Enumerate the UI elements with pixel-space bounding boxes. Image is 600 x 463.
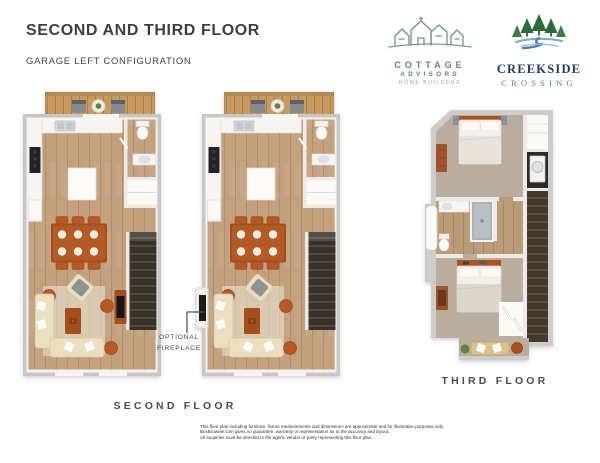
closet [499, 302, 523, 336]
creekside-name: CREEKSIDE [486, 62, 592, 77]
disclaimer: This floor plan including furniture, fix… [200, 424, 444, 440]
second-floor-plan [15, 92, 161, 382]
optional-fireplace-callout: OPTIONAL FIREPLACE [150, 333, 208, 355]
bedroom-2 [436, 258, 529, 356]
cottage-name: COTTAGE [381, 60, 479, 70]
bench [471, 342, 509, 355]
cottage-houses-icon [383, 14, 477, 54]
laundry-closet [527, 152, 548, 191]
second-floor-plan-optional-fireplace [194, 92, 340, 382]
creekside-crossing-logo: CREEKSIDE CROSSING [486, 12, 592, 88]
tv-console [115, 290, 127, 324]
bed [459, 120, 501, 164]
cottage-advisors-logo: COTTAGE ADVISORS HOME BUILDERS [381, 14, 479, 86]
plant-icon [461, 345, 470, 354]
configuration-label: GARAGE LEFT CONFIGURATION [26, 56, 191, 67]
nightstand [501, 116, 507, 125]
crossing-name: CROSSING [486, 78, 592, 88]
bathroom [426, 201, 523, 256]
callout-line2: FIREPLACE [150, 344, 208, 355]
nightstand [453, 116, 459, 125]
cottage-name2: ADVISORS [381, 71, 479, 78]
sink-basin-icon [442, 203, 453, 210]
toilet-icon [439, 239, 449, 251]
page-title: SECOND AND THIRD FLOOR [26, 22, 260, 40]
bed [457, 266, 501, 312]
stairs [527, 191, 548, 342]
shower-icon [471, 201, 493, 241]
disclaimer-line3: All enquiries must be directed to the ag… [200, 435, 444, 440]
third-floor-label: THIRD FLOOR [425, 375, 565, 387]
callout-line1: OPTIONAL [150, 333, 208, 344]
fireplace-callout-line [184, 309, 206, 335]
cottage-tagline: HOME BUILDERS [381, 80, 479, 86]
creekside-trees-icon [509, 12, 569, 56]
bathtub-icon [426, 206, 437, 250]
floor-plan-flyer: SECOND AND THIRD FLOOR GARAGE LEFT CONFI… [0, 0, 600, 463]
third-floor-plan [423, 106, 563, 364]
wall [523, 115, 527, 346]
second-floor-label: SECOND FLOOR [95, 400, 255, 412]
side-table [512, 343, 523, 354]
wall [436, 254, 523, 258]
upper-closet [527, 115, 548, 152]
